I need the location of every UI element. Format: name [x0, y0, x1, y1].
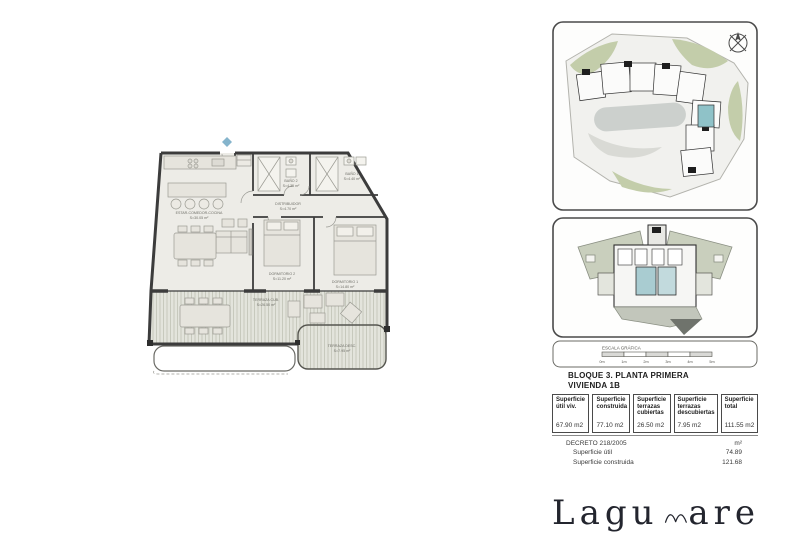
logo-wave-icon	[664, 505, 688, 529]
block-plan	[552, 217, 758, 338]
table-cell: Superficie terrazas cubiertas 26.50 m2	[633, 394, 670, 433]
table-header: Superficie construida	[596, 397, 627, 410]
table-rule	[552, 435, 758, 436]
scale-tick: 5m	[709, 360, 714, 364]
table-cell: Superficie útil viv. 67.90 m2	[552, 394, 589, 433]
sofa	[216, 231, 247, 253]
table-header: Superficie terrazas cubiertas	[637, 397, 667, 417]
table-header: Superficie útil viv.	[556, 397, 586, 410]
room-area: S=30.05 m²	[190, 216, 209, 220]
table-value: 77.10 m2	[596, 422, 627, 429]
room-label: DORMITORIO 1	[332, 280, 358, 284]
surface-table: Superficie útil viv. 67.90 m2 Superficie…	[552, 394, 758, 433]
decreto-value: 121.68	[722, 458, 742, 467]
room-area: S=4.70 m²	[280, 207, 297, 211]
table-header: Superficie total	[725, 397, 755, 410]
site-plan	[552, 21, 758, 211]
decreto-label: Superficie construida	[566, 458, 634, 467]
brand-logo: Lagu are	[552, 493, 760, 533]
dining-table	[174, 233, 216, 259]
sheet-title: BLOQUE 3. PLANTA PRIMERA VIVIENDA 1B	[568, 371, 758, 392]
room-area: S=26.50 m²	[257, 303, 276, 307]
scale-tick: 4m	[687, 360, 692, 364]
room-label: TERRAZA CUB.	[253, 298, 279, 302]
room-label: BAÑO 2	[284, 178, 297, 183]
highlighted-vivienda	[636, 267, 656, 295]
table-value: 26.50 m2	[637, 422, 667, 429]
room-area: S=14.80 m²	[336, 285, 355, 289]
room-area: S=4.40 m²	[344, 177, 361, 181]
title-line-1: BLOQUE 3. PLANTA PRIMERA	[568, 371, 758, 381]
table-cell: Superficie terrazas descubiertas 7.95 m2	[674, 394, 718, 433]
highlighted-unit	[698, 105, 714, 127]
scale-bar: ESCALA GRÁFICA 0m 1m 2m 3m 4m 5m	[552, 340, 758, 368]
title-line-2: VIVIENDA 1B	[568, 381, 758, 391]
scale-tick: 0m	[599, 360, 604, 364]
scale-bar-label: ESCALA GRÁFICA	[602, 345, 641, 351]
room-area: S=7.95 m²	[334, 349, 351, 353]
room-area: S=4.35 m²	[283, 184, 300, 188]
room-label: DISTRIBUIDOR	[275, 202, 301, 206]
decreto-title: DECRETO 218/2005	[566, 439, 627, 448]
entry-marker-icon	[222, 137, 232, 147]
table-cell: Superficie construida 77.10 m2	[592, 394, 630, 433]
table-value: 7.95 m2	[678, 422, 715, 429]
scale-tick: 3m	[665, 360, 670, 364]
room-label: TERRAZA DESC.	[328, 344, 357, 348]
logo-text-right: are	[688, 493, 760, 533]
terrace-table	[180, 305, 230, 327]
room-label: ESTAR-COMEDOR-COCINA	[176, 211, 223, 215]
decreto-block: DECRETO 218/2005 m² Superficie útil 74.8…	[566, 439, 742, 467]
decreto-unit: m²	[734, 439, 742, 448]
room-label: BAÑO 1	[345, 171, 358, 176]
apartment-floor-plan: ESTAR-COMEDOR-COCINA S=30.05 m² DISTRIBU…	[138, 133, 400, 375]
scale-tick: 2m	[643, 360, 648, 364]
room-label: DORMITORIO 2	[269, 272, 295, 276]
logo-text-left: Lagu	[552, 493, 659, 533]
lower-terrace-outline	[154, 346, 295, 371]
decreto-label: Superficie útil	[566, 448, 612, 457]
plan-sheet: ESTAR-COMEDOR-COCINA S=30.05 m² DISTRIBU…	[0, 0, 800, 558]
scale-bar-segments	[602, 352, 712, 357]
table-cell: Superficie total 111.55 m2	[721, 394, 758, 433]
kitchen-counter	[164, 156, 236, 169]
table-header: Superficie terrazas descubiertas	[678, 397, 715, 417]
table-value: 111.55 m2	[725, 422, 755, 429]
decreto-value: 74.89	[726, 448, 742, 457]
scale-tick: 1m	[621, 360, 626, 364]
kitchen-island	[168, 183, 226, 197]
table-value: 67.90 m2	[556, 422, 586, 429]
room-area: S=11.20 m²	[273, 277, 292, 281]
